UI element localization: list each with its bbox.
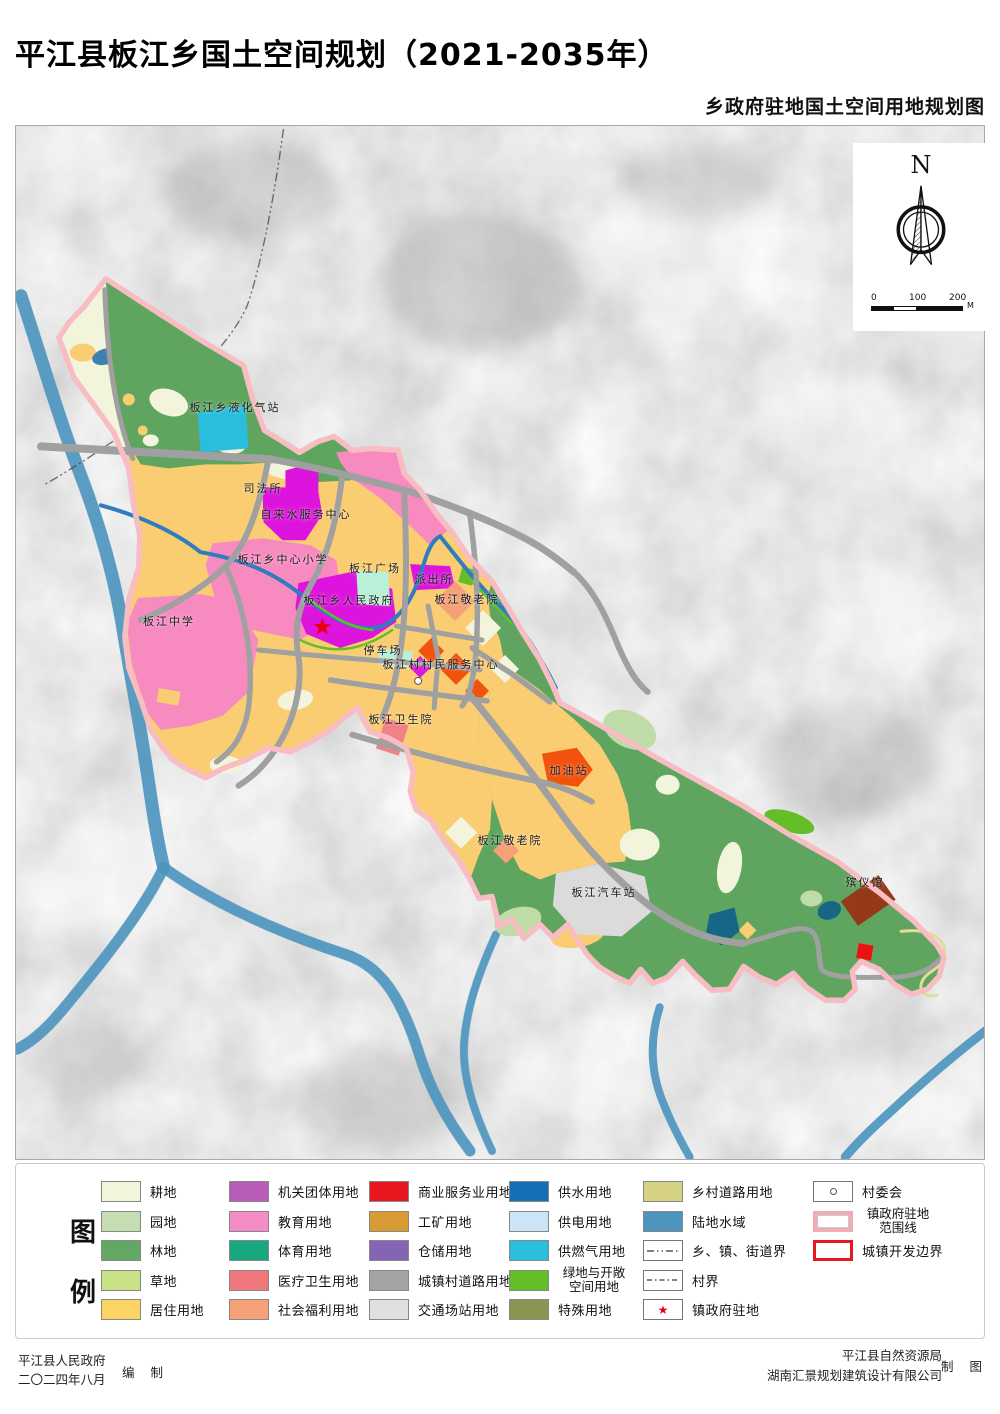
scale-tick-0: 0 xyxy=(871,293,877,303)
legend-column-1: 耕地 园地 林地 草地 居住用地 xyxy=(101,1177,204,1325)
north-arrow-panel: N 0 100 200 M xyxy=(853,143,989,331)
legend-column-3: 商业服务业用地 工矿用地 仓储用地 城镇村道路用地 交通场站用地 xyxy=(369,1177,513,1325)
footer-left-role: 编 制 xyxy=(122,1362,169,1381)
label-bus-station: 板江汽车站 xyxy=(572,884,637,900)
label-township-government: 板江乡人民政府 xyxy=(304,592,395,608)
label-police-station: 派出所 xyxy=(415,571,454,587)
swatch-storage xyxy=(369,1240,409,1261)
legend-item: 耕地 xyxy=(101,1177,204,1207)
legend-item: 陆地水域 xyxy=(643,1207,787,1237)
village-boundary-icon xyxy=(643,1270,683,1291)
legend-item: 体育用地 xyxy=(229,1236,359,1266)
compass-icon xyxy=(886,179,956,289)
label-water-service-center: 自来水服务中心 xyxy=(261,506,352,522)
label-middle-school: 板江中学 xyxy=(143,613,195,629)
map-canvas xyxy=(16,126,984,1159)
swatch-urban-road xyxy=(369,1270,409,1291)
label-elderly-home-1: 板江敬老院 xyxy=(435,591,500,607)
swatch-power-supply xyxy=(509,1211,549,1232)
legend-column-6: 村委会 镇政府驻地范围线 城镇开发边界 xyxy=(813,1177,943,1266)
swatch-rural-road xyxy=(643,1181,683,1202)
legend-item: 交通场站用地 xyxy=(369,1295,513,1325)
planning-map: 板江乡液化气站 司法所 自来水服务中心 板江乡中心小学 板江广场 派出所 板江敬… xyxy=(15,125,985,1160)
swatch-welfare xyxy=(229,1299,269,1320)
swatch-land-water xyxy=(643,1211,683,1232)
legend-item: 草地 xyxy=(101,1266,204,1296)
swatch-education xyxy=(229,1211,269,1232)
page-title: 平江县板江乡国土空间规划（2021-2035年） xyxy=(15,30,668,74)
legend-item: 乡村道路用地 xyxy=(643,1177,787,1207)
label-funeral-home: 殡仪馆 xyxy=(846,874,885,890)
legend-item: 机关团体用地 xyxy=(229,1177,359,1207)
legend-item: 村委会 xyxy=(813,1177,943,1207)
scale-tick-200: 200 xyxy=(949,293,966,303)
village-committee-legend-icon xyxy=(813,1181,853,1202)
swatch-forest xyxy=(101,1240,141,1261)
swatch-industrial xyxy=(369,1211,409,1232)
legend-item: 供水用地 xyxy=(509,1177,630,1207)
swatch-water-supply xyxy=(509,1181,549,1202)
legend-item: 镇政府驻地范围线 xyxy=(813,1207,943,1237)
label-villager-service-center: 板江村村民服务中心 xyxy=(383,656,500,672)
swatch-cultivated xyxy=(101,1181,141,1202)
legend-heading-1: 图 xyxy=(66,1212,100,1249)
legend-panel: 图 例 耕地 园地 林地 草地 居住用地 机关团体用地 教育用地 体育用地 医疗… xyxy=(15,1163,985,1339)
legend-item: 仓储用地 xyxy=(369,1236,513,1266)
legend-item: 村界 xyxy=(643,1266,787,1296)
footer-drafter: 平江县自然资源局 湖南汇景规划建筑设计有限公司 xyxy=(767,1346,942,1386)
legend-column-4: 供水用地 供电用地 供燃气用地 绿地与开敞空间用地 特殊用地 xyxy=(509,1177,630,1325)
map-subtitle: 乡政府驻地国土空间用地规划图 xyxy=(705,92,985,119)
scale-unit: M xyxy=(967,301,974,310)
swatch-transport-station xyxy=(369,1299,409,1320)
legend-item: 乡、镇、街道界 xyxy=(643,1236,787,1266)
footer-left-line2: 二〇二四年八月 xyxy=(18,1371,106,1390)
swatch-government xyxy=(229,1181,269,1202)
label-elderly-home-2: 板江敬老院 xyxy=(478,832,543,848)
label-banjiang-plaza: 板江广场 xyxy=(349,560,401,576)
scale-bar-graphic xyxy=(871,306,963,311)
swatch-medical xyxy=(229,1270,269,1291)
legend-item: ★镇政府驻地 xyxy=(643,1295,787,1325)
legend-item: 医疗卫生用地 xyxy=(229,1266,359,1296)
swatch-orchard xyxy=(101,1211,141,1232)
footer-right-line1: 平江县自然资源局 xyxy=(767,1346,942,1366)
footer-compiler: 平江县人民政府 二〇二四年八月 xyxy=(18,1352,106,1390)
north-label: N xyxy=(853,151,989,179)
legend-item: 城镇村道路用地 xyxy=(369,1266,513,1296)
legend-item: 商业服务业用地 xyxy=(369,1177,513,1207)
government-seat-icon: ★ xyxy=(643,1299,683,1320)
legend-item: 园地 xyxy=(101,1207,204,1237)
label-justice-office: 司法所 xyxy=(244,480,283,496)
urban-dev-boundary-icon xyxy=(813,1240,853,1261)
legend-item: 特殊用地 xyxy=(509,1295,630,1325)
swatch-special xyxy=(509,1299,549,1320)
swatch-commercial xyxy=(369,1181,409,1202)
footer: 平江县人民政府 二〇二四年八月 编 制 平江县自然资源局 湖南汇景规划建筑设计有… xyxy=(0,1344,1000,1404)
label-fuel-station: 加油站 xyxy=(550,762,589,778)
label-gas-supply-station: 板江乡液化气站 xyxy=(190,399,281,415)
legend-column-5: 乡村道路用地 陆地水域 乡、镇、街道界 村界 ★镇政府驻地 xyxy=(643,1177,787,1325)
scale-tick-100: 100 xyxy=(909,293,926,303)
legend-column-2: 机关团体用地 教育用地 体育用地 医疗卫生用地 社会福利用地 xyxy=(229,1177,359,1325)
swatch-sports xyxy=(229,1240,269,1261)
swatch-gas-supply xyxy=(509,1240,549,1261)
footer-right-line2: 湖南汇景规划建筑设计有限公司 xyxy=(767,1366,942,1386)
legend-item: 供燃气用地 xyxy=(509,1236,630,1266)
legend-item: 城镇开发边界 xyxy=(813,1236,943,1266)
legend-item: 林地 xyxy=(101,1236,204,1266)
swatch-grass xyxy=(101,1270,141,1291)
legend-item: 供电用地 xyxy=(509,1207,630,1237)
legend-item: 教育用地 xyxy=(229,1207,359,1237)
scale-bar: 0 100 200 M xyxy=(871,293,963,311)
legend-heading-2: 例 xyxy=(66,1272,100,1309)
footer-right-role: 制 图 xyxy=(941,1356,988,1375)
legend-item: 绿地与开敞空间用地 xyxy=(509,1266,630,1296)
label-health-clinic: 板江卫生院 xyxy=(369,711,434,727)
village-committee-icon xyxy=(415,677,422,684)
legend-item: 居住用地 xyxy=(101,1295,204,1325)
settlement-boundary-icon xyxy=(813,1211,853,1232)
swatch-green-open xyxy=(509,1270,549,1291)
township-street-boundary-icon xyxy=(643,1240,683,1261)
swatch-residential xyxy=(101,1299,141,1320)
footer-left-line1: 平江县人民政府 xyxy=(18,1352,106,1371)
legend-item: 工矿用地 xyxy=(369,1207,513,1237)
legend-item: 社会福利用地 xyxy=(229,1295,359,1325)
label-central-primary-school: 板江乡中心小学 xyxy=(238,551,329,567)
